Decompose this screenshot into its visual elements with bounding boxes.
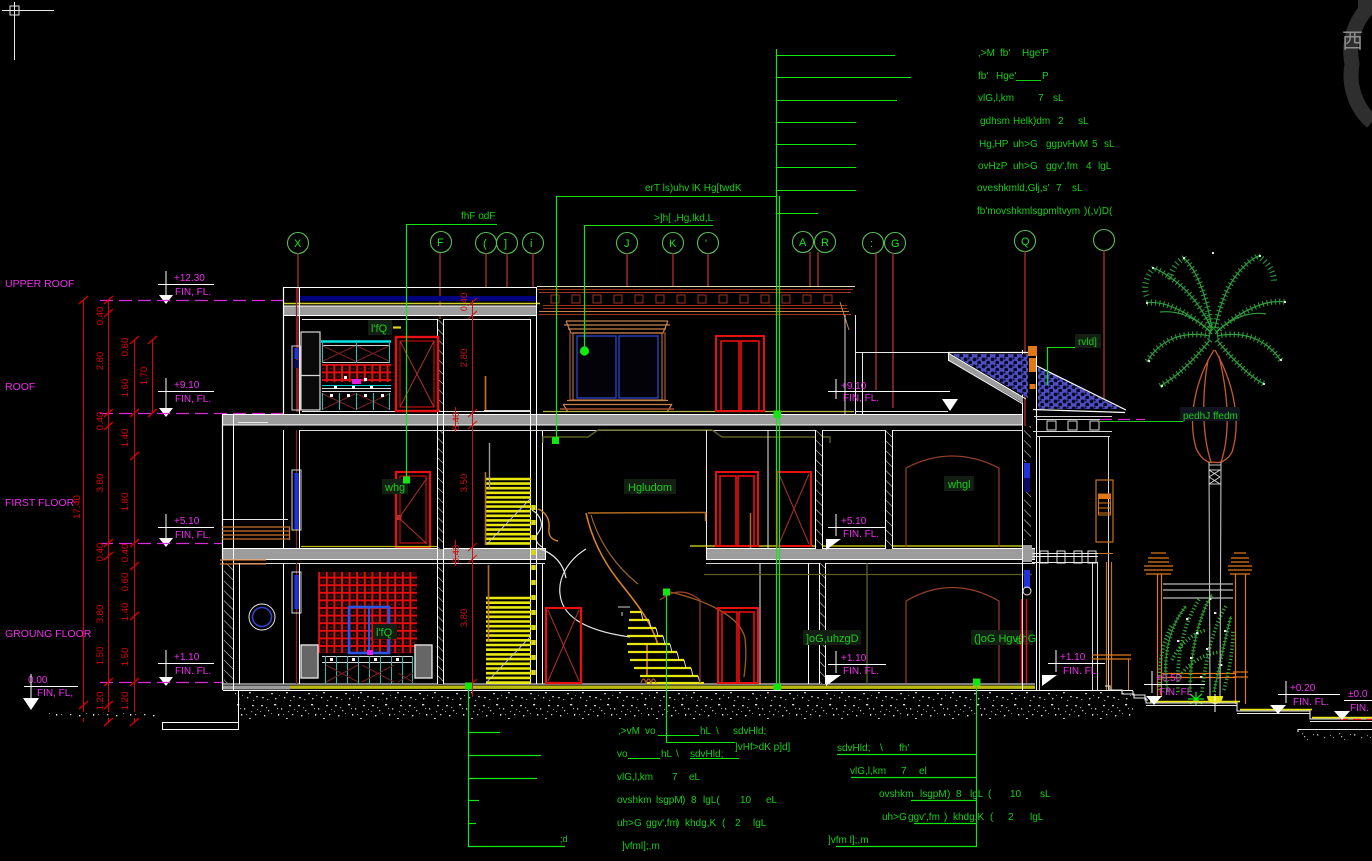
svg-text:FIN, FL,: FIN, FL, bbox=[37, 688, 73, 699]
svg-text:0.40: 0.40 bbox=[451, 545, 462, 564]
svg-text:+5.10: +5.10 bbox=[841, 516, 867, 527]
svg-text:G: G bbox=[1016, 637, 1022, 646]
svg-text:1.80: 1.80 bbox=[120, 493, 131, 512]
svg-text:0.40: 0.40 bbox=[95, 307, 106, 326]
svg-text:3.80: 3.80 bbox=[95, 605, 106, 624]
svg-text:>]h[ ,Hg,lkd,L: >]h[ ,Hg,lkd,L bbox=[654, 213, 714, 224]
svg-text:+1.10: +1.10 bbox=[1060, 652, 1086, 663]
svg-text:Hgludom: Hgludom bbox=[628, 482, 672, 494]
svg-text:FIN. FL.: FIN. FL. bbox=[843, 666, 879, 677]
svg-text:A: A bbox=[799, 237, 807, 249]
svg-text:FIN. FL.: FIN. FL. bbox=[1293, 697, 1329, 708]
svg-text:pedhJ ffedm: pedhJ ffedm bbox=[1183, 411, 1238, 422]
svg-text:0.60: 0.60 bbox=[120, 338, 131, 357]
svg-text:3.80: 3.80 bbox=[95, 474, 106, 493]
svg-text:GROUNG FLOOR: GROUNG FLOOR bbox=[5, 628, 92, 640]
svg-text:UPPER ROOF: UPPER ROOF bbox=[5, 278, 74, 290]
svg-text:+5.10: +5.10 bbox=[174, 516, 200, 527]
svg-text:西: 西 bbox=[1342, 30, 1363, 53]
svg-text:i: i bbox=[530, 238, 532, 250]
svg-text:0.40: 0.40 bbox=[95, 543, 106, 562]
svg-text:l'fQ: l'fQ bbox=[376, 627, 393, 639]
svg-text:+0.20: +0.20 bbox=[1290, 683, 1316, 694]
svg-text:2.80: 2.80 bbox=[459, 349, 470, 368]
svg-text:3.80: 3.80 bbox=[459, 609, 470, 628]
svg-text:0.40: 0.40 bbox=[459, 293, 470, 312]
svg-text:]vfml];,m: ]vfml];,m bbox=[622, 841, 660, 852]
svg-text:(: ( bbox=[483, 238, 487, 250]
svg-text:rvld]: rvld] bbox=[1078, 337, 1097, 348]
svg-text:1.20: 1.20 bbox=[120, 692, 131, 711]
svg-text:R: R bbox=[821, 237, 829, 249]
svg-text:FIN. FL.: FIN. FL. bbox=[175, 666, 211, 677]
svg-text:FIN, FL.: FIN, FL. bbox=[175, 394, 211, 405]
svg-text:J: J bbox=[624, 238, 630, 250]
svg-text:ROOF: ROOF bbox=[5, 381, 35, 393]
svg-text:+1.10: +1.10 bbox=[174, 652, 200, 663]
svg-text:FIN, FL.: FIN, FL. bbox=[175, 530, 211, 541]
svg-text:]vfm l];,m: ]vfm l];,m bbox=[828, 835, 869, 846]
svg-text:]oG,uhzgD: ]oG,uhzgD bbox=[806, 633, 859, 645]
svg-text:+1.10: +1.10 bbox=[841, 653, 867, 664]
svg-text:]: ] bbox=[504, 238, 507, 250]
svg-text:0.40: 0.40 bbox=[95, 412, 106, 431]
svg-text:whg: whg bbox=[384, 482, 405, 494]
svg-text:FIN.: FIN. bbox=[1350, 703, 1369, 714]
svg-text:1.70: 1.70 bbox=[139, 367, 150, 386]
svg-text:;d: ;d bbox=[560, 834, 568, 844]
svg-text:F: F bbox=[437, 237, 444, 249]
svg-text:0.40: 0.40 bbox=[120, 544, 131, 563]
svg-text:+9.10: +9.10 bbox=[174, 380, 200, 391]
svg-text:K: K bbox=[669, 238, 677, 250]
svg-text:1.50: 1.50 bbox=[120, 648, 131, 667]
svg-text:FIN. FL.: FIN. FL. bbox=[1063, 666, 1099, 677]
svg-text:FIRST FLOOR: FIRST FLOOR bbox=[5, 497, 75, 509]
svg-text:1.40: 1.40 bbox=[120, 603, 131, 622]
svg-text:0.60: 0.60 bbox=[120, 573, 131, 592]
svg-text:0.40: 0.40 bbox=[451, 412, 462, 431]
svg-text:erT ls)uhv lK Hg[twdK: erT ls)uhv lK Hg[twdK bbox=[645, 183, 742, 194]
svg-text:G: G bbox=[891, 238, 900, 250]
svg-text:+12.30: +12.30 bbox=[174, 273, 205, 284]
svg-text::: : bbox=[870, 238, 873, 250]
svg-text:2.80: 2.80 bbox=[95, 352, 106, 371]
svg-text:1.60: 1.60 bbox=[120, 379, 131, 398]
svg-text:X: X bbox=[294, 238, 302, 250]
svg-text:FIN, FL.: FIN, FL. bbox=[843, 393, 879, 404]
svg-text:FIN, FL.: FIN, FL. bbox=[175, 287, 211, 298]
svg-text:l'fQ: l'fQ bbox=[371, 323, 388, 335]
svg-text:+0.50: +0.50 bbox=[1156, 673, 1182, 684]
svg-text:1.40: 1.40 bbox=[120, 429, 131, 448]
svg-text:': ' bbox=[705, 238, 707, 250]
svg-text:FIN. FL: FIN. FL bbox=[1159, 687, 1193, 698]
svg-text:3.50: 3.50 bbox=[459, 474, 470, 493]
svg-text:+9.10: +9.10 bbox=[841, 381, 867, 392]
svg-text:17.40: 17.40 bbox=[72, 495, 83, 519]
svg-text:Hg,HPuh>GggpvHvM5sL: Hg,HPuh>GggpvHvM5sL bbox=[979, 139, 1115, 150]
svg-text:Q: Q bbox=[1021, 236, 1030, 248]
svg-text:whgl: whgl bbox=[947, 479, 971, 491]
svg-text:1.20: 1.20 bbox=[95, 692, 106, 711]
svg-text:]vHf>dK p]d]: ]vHf>dK p]d] bbox=[735, 742, 791, 753]
svg-text:fhF odF: fhF odF bbox=[461, 211, 495, 222]
svg-text:±0.0: ±0.0 bbox=[1348, 689, 1368, 700]
svg-text:1.50: 1.50 bbox=[95, 647, 106, 666]
svg-text:fb'movshkmlsgpmltvym)(,v)D(: fb'movshkmlsgpmltvym)(,v)D( bbox=[977, 206, 1113, 217]
svg-text:FIN. FL.: FIN. FL. bbox=[843, 529, 879, 540]
